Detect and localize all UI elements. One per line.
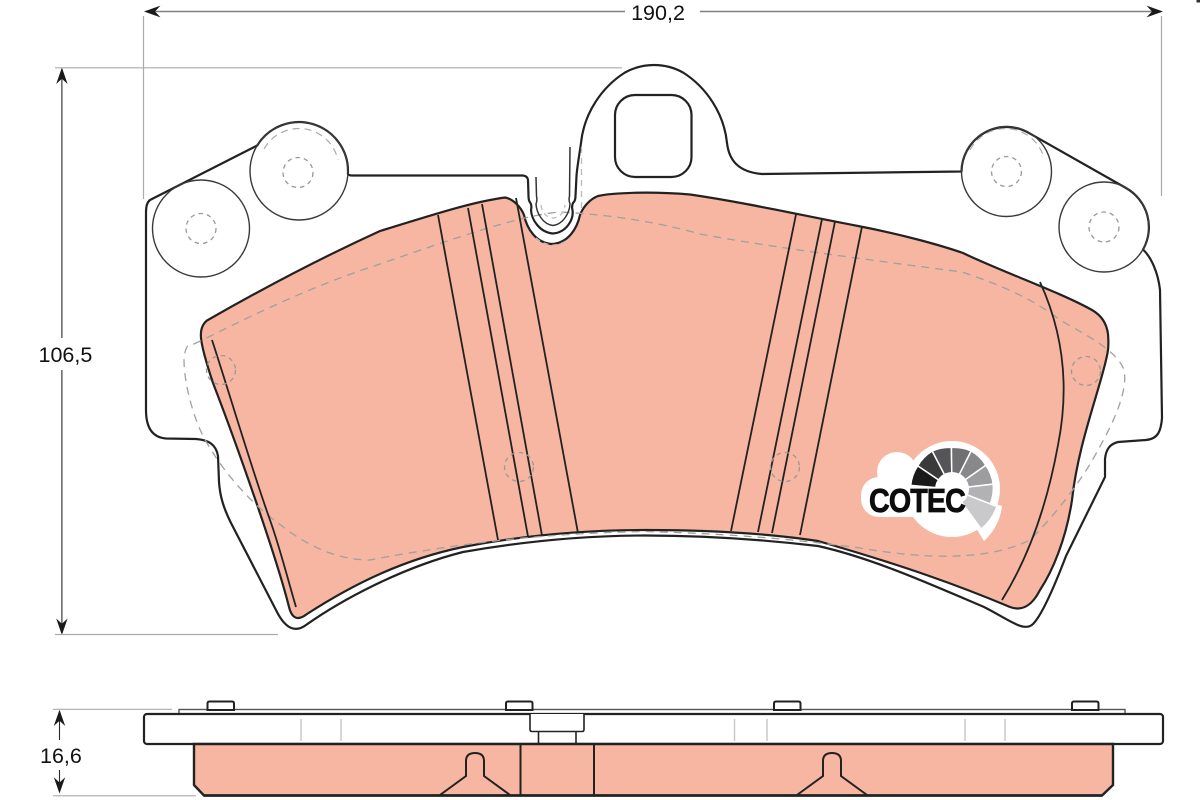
svg-text:COTEC: COTEC [869,483,966,520]
svg-text:16,6: 16,6 [40,744,82,768]
svg-text:106,5: 106,5 [39,343,93,367]
svg-text:190,2: 190,2 [631,1,685,25]
